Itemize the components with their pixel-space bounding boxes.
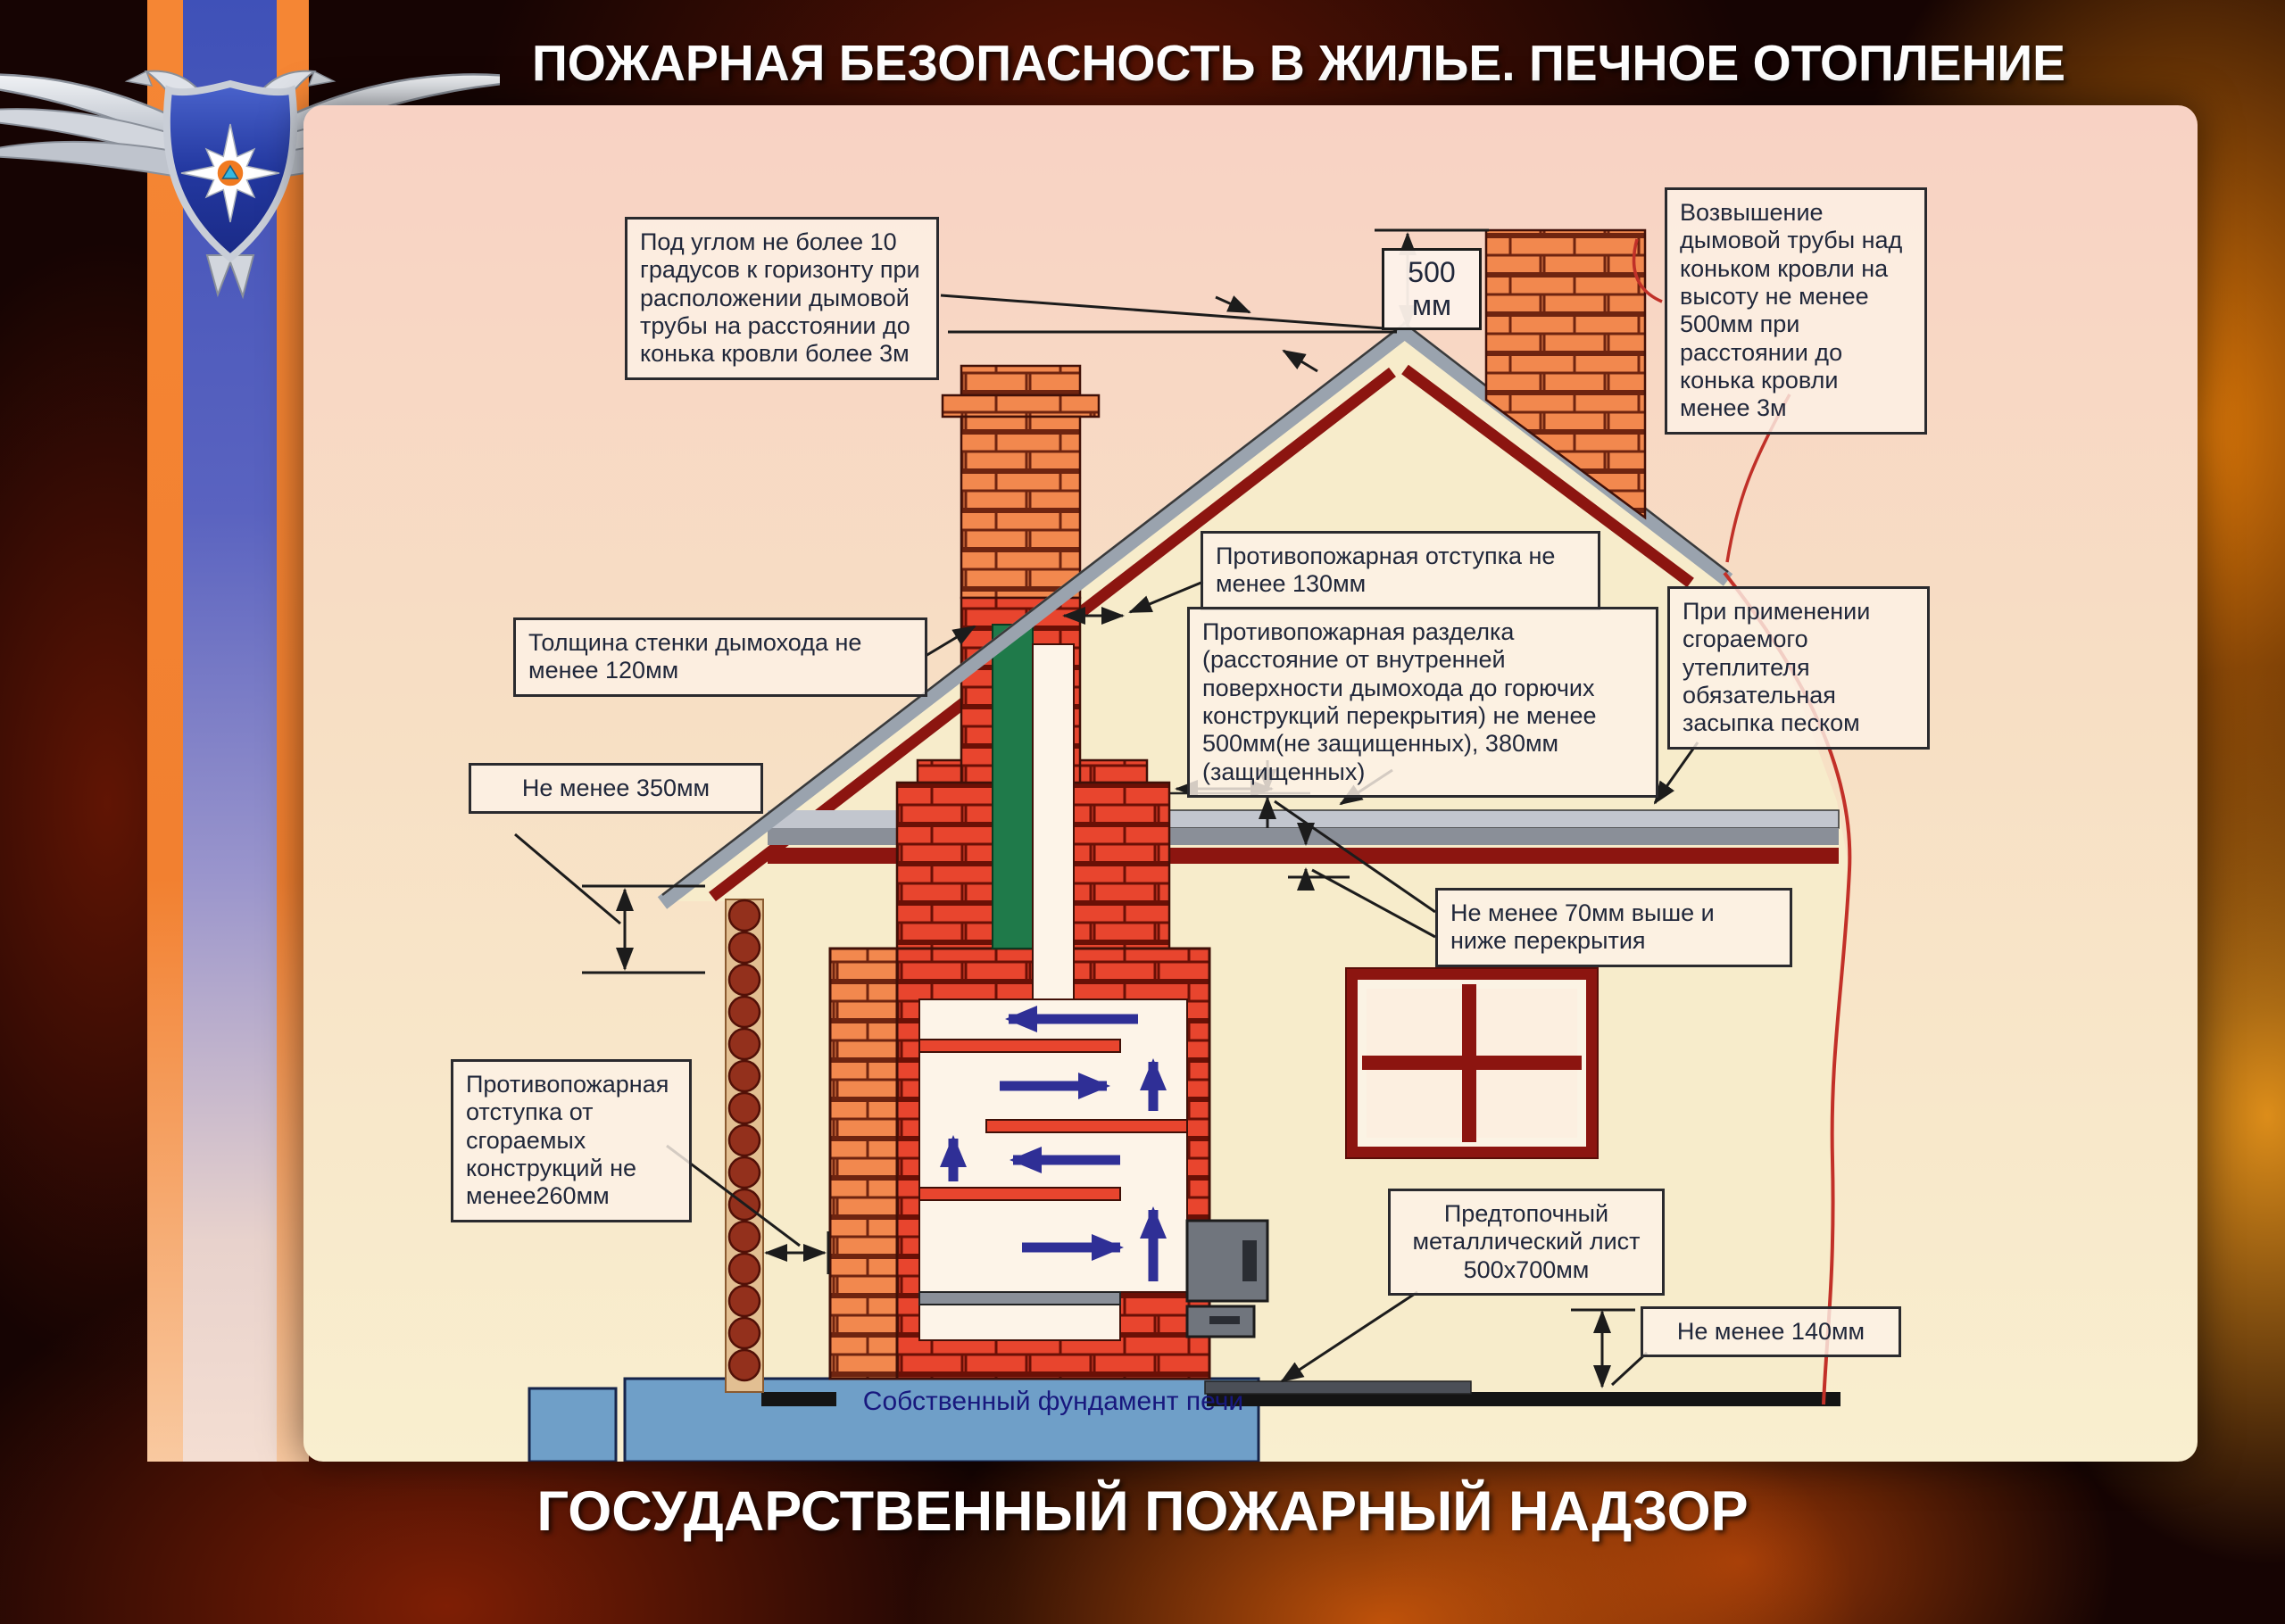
log-wall	[726, 899, 763, 1392]
poster-background: ПОЖАРНАЯ БЕЗОПАСНОСТЬ В ЖИЛЬЕ. ПЕЧНОЕ ОТ…	[0, 0, 2285, 1624]
window	[1346, 968, 1598, 1158]
flue-channel	[1033, 644, 1074, 999]
callout-otstupka-130mm: Противопожарная отступка не менее 130мм	[1201, 531, 1600, 610]
foundation-label: Собственный фундамент печи	[848, 1387, 1259, 1417]
callout-min-350mm: Не менее 350мм	[469, 763, 763, 814]
callout-min-70mm: Не менее 70мм выше и ниже перекрытия	[1435, 888, 1792, 967]
callout-razdelka: Противопожарная разделка (расстояние от …	[1187, 607, 1658, 798]
grate	[919, 1292, 1120, 1305]
callout-chimney-elevation: Возвышение дымовой трубы над коньком кро…	[1665, 187, 1927, 435]
poster-panel: Под углом не более 10 градусов к горизон…	[303, 105, 2198, 1462]
floor-left	[761, 1392, 836, 1406]
footer-title: ГОСУДАРСТВЕННЫЙ ПОЖАРНЫЙ НАДЗОР	[0, 1479, 2285, 1544]
callout-otstupka-260mm: Противопожарная отступка от сгораемых ко…	[451, 1059, 692, 1222]
damper	[993, 625, 1033, 949]
callout-min-140mm: Не менее 140мм	[1641, 1306, 1901, 1357]
callout-sand-fill: При применении сгораемого утеплителя обя…	[1667, 586, 1930, 750]
wall-footing	[529, 1388, 616, 1462]
callout-angle-10deg: Под углом не более 10 градусов к горизон…	[625, 217, 939, 380]
dimension-500mm: 500 мм	[1382, 248, 1482, 330]
callout-wall-thickness-120mm: Толщина стенки дымохода не менее 120мм	[513, 617, 927, 697]
callout-hearth-sheet: Предтопочный металлический лист 500х700м…	[1388, 1189, 1665, 1296]
page-title: ПОЖАРНАЯ БЕЗОПАСНОСТЬ В ЖИЛЬЕ. ПЕЧНОЕ ОТ…	[342, 36, 2256, 92]
